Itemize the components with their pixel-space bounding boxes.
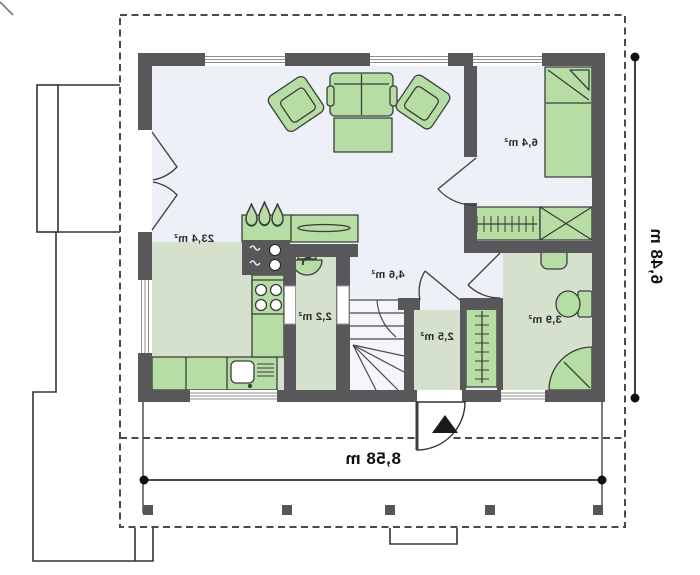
garage-outline: [33, 232, 153, 561]
room-area-label-pantry: 2,2 m²: [298, 311, 332, 323]
room-area-label-bedroom: 6,4 m²: [504, 137, 538, 149]
room-vestibule-floor: [414, 310, 460, 390]
pantry-door-slot-right: [337, 286, 349, 324]
window-living-1: [205, 53, 285, 66]
fireplace-flames-icon: [246, 202, 283, 226]
dimension-width: [140, 476, 607, 485]
wall-bedroom-bathroom: [464, 241, 592, 253]
wall-exterior-right: [592, 53, 605, 402]
cooktop-symbol: [252, 275, 284, 357]
window-living-2: [370, 53, 448, 66]
kitchen-sink-icon: [231, 361, 254, 383]
pantry-door-slot-left: [285, 286, 296, 324]
wardrobe-hangers-symbol: [470, 207, 540, 240]
shaft-box-symbol: [540, 207, 592, 240]
floor-plan-canvas: 23,4 m² 6,4 m² 4,6 m² 2,2 m² 2,5 m² 3,9 …: [0, 0, 700, 575]
room-area-label-hall: 4,6 m²: [371, 269, 405, 281]
bed-symbol: [545, 67, 592, 177]
entrance-door-symbol: [417, 390, 465, 450]
wall-bedroom-partition-upper: [464, 66, 477, 157]
wall-closet-bathroom: [497, 307, 503, 390]
entry-steps-outline: [390, 528, 457, 544]
wall-vestibule-top-left: [398, 298, 420, 310]
window-bedroom: [473, 53, 542, 66]
window-kitchen-left: [138, 280, 152, 353]
floor-plan-drawing: [0, 0, 700, 575]
room-area-label-living: 23,4 m²: [174, 233, 214, 245]
dimension-depth: [631, 53, 640, 403]
room-area-label-vestibule: 2,5 m²: [420, 331, 454, 343]
stairs-symbol: [350, 298, 404, 390]
dimension-width-label: 8,58 m: [345, 449, 401, 469]
porch-posts: [143, 505, 603, 515]
kitchen-counter-symbol: [152, 357, 277, 390]
coffee-table-symbol: [334, 118, 392, 152]
wall-vestibule-closet: [460, 307, 466, 390]
wall-pantry-top: [287, 244, 358, 257]
sofa-symbol: [327, 73, 397, 116]
neighbor-structure: [37, 85, 58, 232]
window-bathroom: [501, 390, 545, 402]
wall-stairs-vestibule: [404, 298, 414, 390]
room-pantry-floor: [296, 257, 336, 390]
chimney-block: [242, 240, 290, 275]
wall-vestibule-top-right: [460, 298, 503, 310]
window-kitchen-bottom: [190, 390, 277, 402]
closet-hangers-symbol: [466, 307, 497, 387]
room-area-label-bathroom: 3,9 m²: [528, 314, 562, 326]
dimension-depth-label: 6,48 m: [646, 228, 666, 284]
corner-artifact-line: [0, 2, 13, 15]
